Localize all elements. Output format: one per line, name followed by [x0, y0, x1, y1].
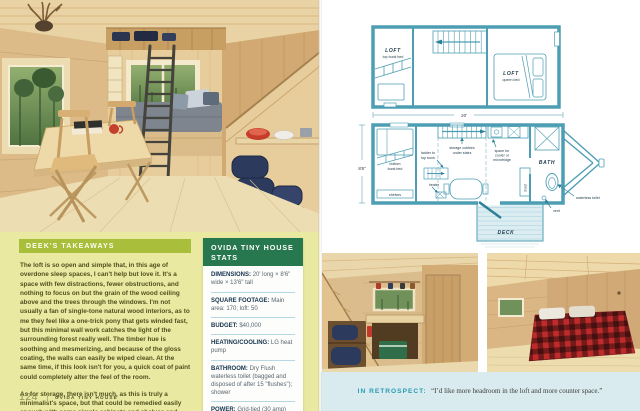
main-floor-plan: 20' 8'6" bottom bunk bed shelves ladder … — [350, 106, 625, 248]
plan-width-dimension: 8'6" — [358, 166, 366, 171]
stat-square-footage: SQUARE FOOTAGE: Main area: 170; loft: 50 — [211, 293, 295, 318]
bunk-label-line1: bottom — [390, 162, 401, 166]
counter — [366, 315, 424, 323]
heater-label: heater — [429, 183, 440, 187]
wall-shelf-unit — [108, 56, 122, 108]
takeaways-title: DEEK'S TAKEAWAYS — [26, 243, 115, 250]
stat-heating-cooling: HEATING/COOLING: LG heat pump — [211, 335, 295, 360]
loft-left-label: LOFT — [385, 48, 401, 54]
left-page: DEEK'S TAKEAWAYS The loft is so open and… — [0, 0, 320, 411]
page-number: 124 — [19, 391, 38, 403]
footer-divider — [47, 392, 48, 402]
retrospect-quote: “I’d like more headroom in the loft and … — [431, 387, 602, 395]
left-page-bottom: DEEK'S TAKEAWAYS The loft is so open and… — [0, 232, 320, 411]
takeaways-box: DEEK'S TAKEAWAYS The loft is so open and… — [19, 239, 191, 411]
photo-main-interior — [0, 0, 320, 232]
trailer-hitch — [563, 130, 600, 196]
storage-label-line2: under stairs — [453, 151, 472, 155]
retrospect-label: IN RETROSPECT: — [358, 388, 427, 395]
book-spread: DEEK'S TAKEAWAYS The loft is so open and… — [0, 0, 640, 411]
photo-kitchen-nook — [322, 253, 478, 372]
stats-title-line1: OVIDA TINY HOUSE — [211, 243, 295, 253]
takeaways-paragraph-1: The loft is so open and simple that, in … — [20, 261, 191, 382]
bath-label: BATH — [539, 160, 555, 166]
stat-bathroom: BATHROOM: Dry Flush waterless toilet (ba… — [211, 361, 295, 403]
cooler-label-line2: cooler or — [495, 154, 510, 158]
width-dimension-line — [359, 125, 365, 203]
loft-left-sublabel: top bunk bed — [383, 55, 404, 59]
stats-title-line2: STATS — [211, 253, 295, 263]
bunk-label-line2: bunk bed — [388, 167, 403, 171]
loft-rail — [106, 28, 226, 50]
stat-power: POWER: Grid-tied (30 amp) — [211, 402, 295, 411]
stat-value: $40,000 — [239, 323, 261, 329]
shelves-label: shelves — [389, 193, 401, 197]
cooler-label-line3: microfridge — [493, 158, 511, 162]
fire-extinguisher — [367, 326, 372, 337]
stat-label: BUDGET: — [211, 323, 238, 329]
loft-right-label: LOFT — [503, 71, 519, 77]
running-book-title: OVIDA TINY HOUSE — [55, 395, 118, 400]
cooler-label-line1: space for — [495, 149, 511, 153]
stat-value: Grid-tied (30 amp) — [237, 407, 286, 411]
stats-header: OVIDA TINY HOUSE STATS — [203, 238, 303, 266]
closet-label: closet — [524, 184, 528, 192]
loft-right-sublabel: queen bed — [503, 78, 520, 82]
stat-dimensions: DIMENSIONS: 20' long × 8'6" wide × 13'6"… — [211, 267, 295, 292]
storage-label-line1: storage cubbies — [449, 146, 475, 150]
plaid-bed — [529, 306, 635, 361]
deck-label: DECK — [498, 230, 515, 236]
stat-label: HEATING/COOLING: — [211, 340, 269, 346]
ladder-label-line2: top bunk — [421, 156, 435, 160]
stat-label: BATHROOM: — [211, 366, 248, 372]
stats-body: DIMENSIONS: 20' long × 8'6" wide × 13'6"… — [203, 266, 303, 411]
green-cooler — [379, 341, 407, 359]
page-gutter — [318, 0, 322, 411]
stats-box: OVIDA TINY HOUSE STATS DIMENSIONS: 20' l… — [203, 238, 303, 411]
page-footer: 124 OVIDA TINY HOUSE — [19, 391, 118, 403]
retrospect-strip: IN RETROSPECT: “I’d like more headroom i… — [320, 372, 640, 411]
right-page: LOFT top bunk bed LOFT queen bed — [320, 0, 640, 411]
length-dimension-line — [373, 112, 563, 118]
loft-window — [499, 299, 523, 316]
vent-label: vent — [553, 209, 560, 213]
stat-label: POWER: — [211, 407, 236, 411]
waterless-toilet-label: waterless toilet — [576, 196, 600, 200]
takeaways-header: DEEK'S TAKEAWAYS — [19, 239, 191, 253]
stat-budget: BUDGET: $40,000 — [211, 318, 295, 335]
photo-loft-bedroom — [487, 253, 640, 372]
stat-label: DIMENSIONS: — [211, 272, 251, 278]
plan-length-dimension: 20' — [461, 113, 467, 118]
loft-floor-plan: LOFT top bunk bed LOFT queen bed — [370, 22, 562, 110]
stat-label: SQUARE FOOTAGE: — [211, 298, 270, 304]
red-mug — [109, 124, 119, 134]
ladder-label-line1: ladder to — [421, 151, 435, 155]
